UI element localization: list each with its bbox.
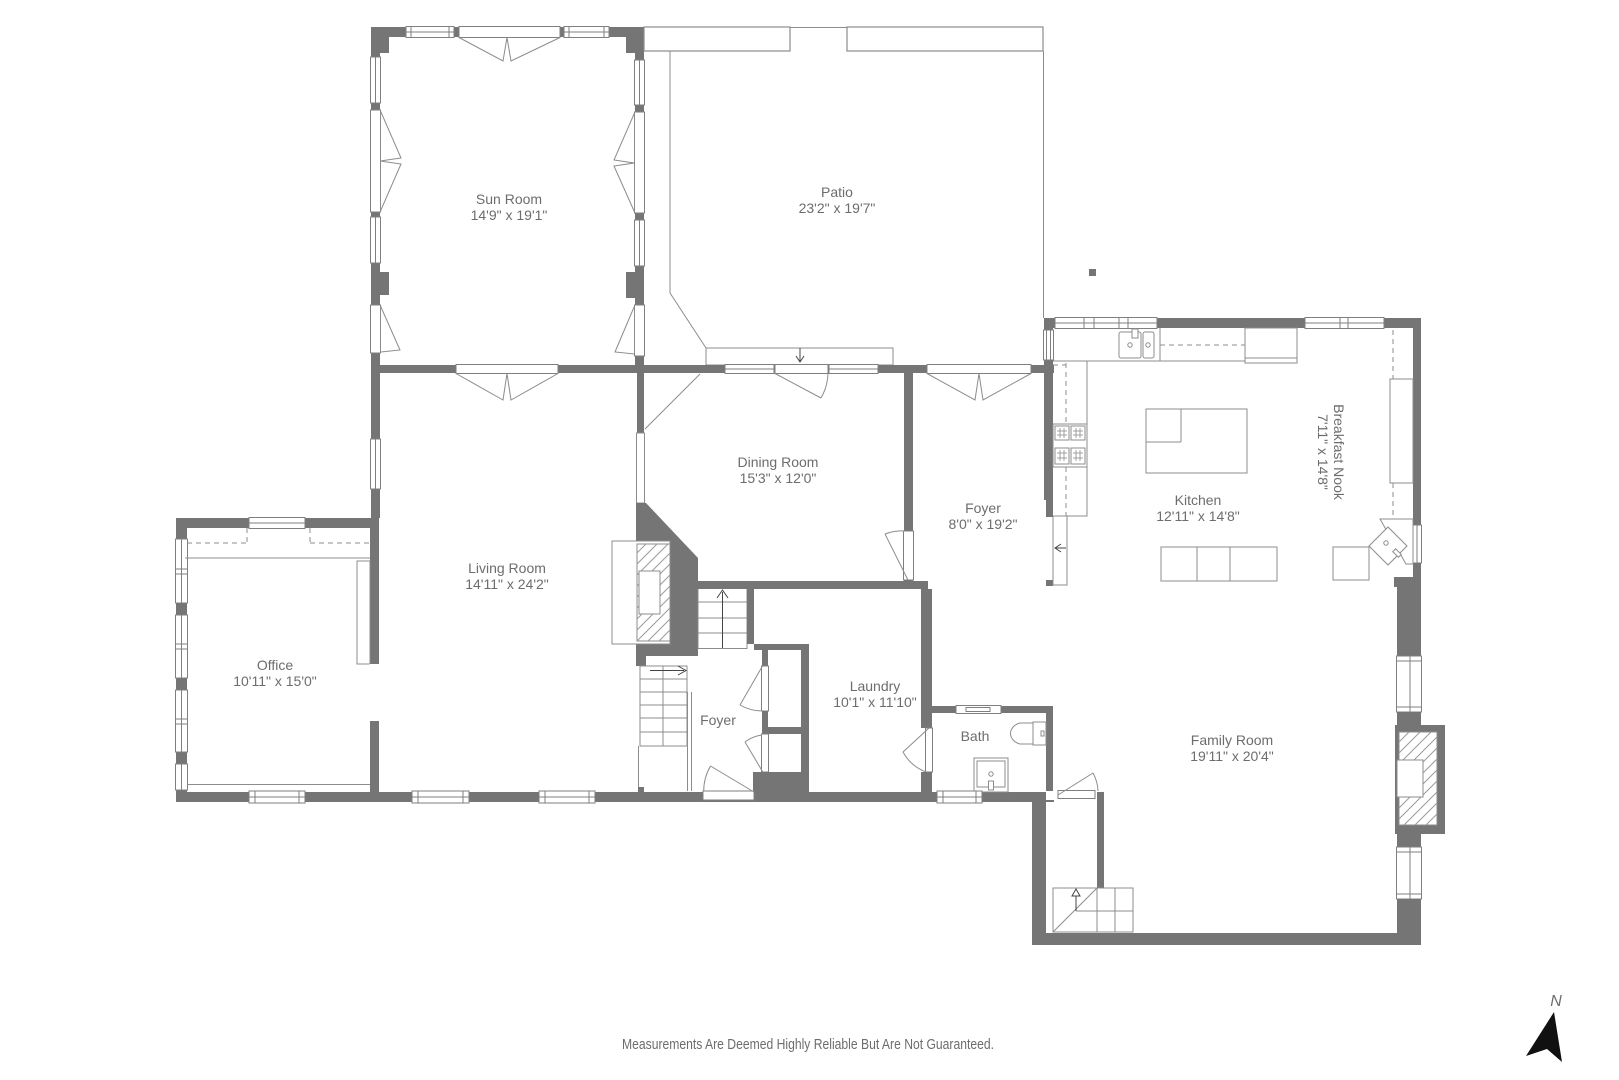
svg-text:Kitchen: Kitchen bbox=[1175, 492, 1222, 508]
svg-text:Family Room: Family Room bbox=[1191, 732, 1273, 748]
svg-text:Office: Office bbox=[257, 657, 294, 673]
svg-text:Living Room: Living Room bbox=[468, 560, 546, 576]
svg-text:7'11" x 14'8": 7'11" x 14'8" bbox=[1315, 414, 1331, 490]
svg-text:10'1" x 11'10": 10'1" x 11'10" bbox=[833, 694, 917, 710]
svg-text:12'11" x 14'8": 12'11" x 14'8" bbox=[1156, 508, 1240, 524]
svg-text:14'11" x 24'2": 14'11" x 24'2" bbox=[465, 576, 549, 592]
svg-text:Breakfast Nook: Breakfast Nook bbox=[1331, 404, 1347, 501]
svg-text:Patio: Patio bbox=[821, 184, 853, 200]
svg-text:19'11" x 20'4": 19'11" x 20'4" bbox=[1190, 748, 1274, 764]
svg-text:Dining Room: Dining Room bbox=[738, 454, 819, 470]
svg-text:Measurements Are Deemed Highly: Measurements Are Deemed Highly Reliable … bbox=[622, 1037, 994, 1053]
svg-text:8'0" x 19'2": 8'0" x 19'2" bbox=[949, 516, 1018, 532]
svg-text:Foyer: Foyer bbox=[700, 712, 736, 728]
svg-text:15'3" x 12'0": 15'3" x 12'0" bbox=[740, 470, 817, 486]
svg-text:23'2" x 19'7": 23'2" x 19'7" bbox=[799, 200, 876, 216]
svg-text:14'9" x 19'1": 14'9" x 19'1" bbox=[471, 207, 548, 223]
svg-text:10'11" x 15'0": 10'11" x 15'0" bbox=[233, 673, 317, 689]
svg-text:Sun Room: Sun Room bbox=[476, 191, 542, 207]
svg-text:Foyer: Foyer bbox=[965, 500, 1001, 516]
svg-text:Bath: Bath bbox=[961, 728, 990, 744]
svg-text:Laundry: Laundry bbox=[850, 678, 901, 694]
svg-text:N: N bbox=[1550, 993, 1562, 1010]
